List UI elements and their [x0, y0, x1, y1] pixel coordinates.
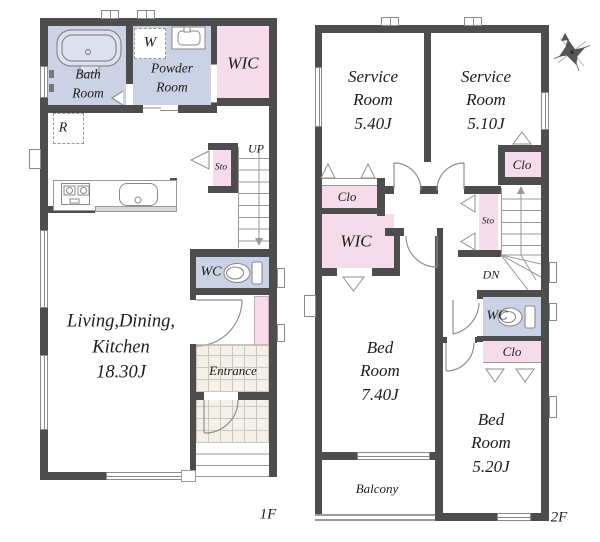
- floorplan: Bath Room Powder Room WIC W R Sto UP WC …: [0, 0, 600, 542]
- shower-panel: [49, 70, 54, 78]
- room-label-service-a: Service Room 5.40J: [348, 65, 398, 135]
- stove-burners: [64, 186, 89, 203]
- room-label-wc-1f: WC: [201, 262, 222, 281]
- door-arc: [437, 163, 464, 190]
- storage-door-icon: [461, 233, 475, 250]
- compass-icon: [554, 33, 590, 71]
- label-washer: W: [144, 33, 157, 54]
- closet-door-icon: [343, 277, 364, 291]
- label-storage-1f: Sto: [215, 161, 227, 174]
- floor-label-2f: 2F: [551, 508, 568, 529]
- arrow-down-icon: [255, 238, 263, 246]
- door-arc: [446, 343, 474, 371]
- room-label-wc-2f: WC: [487, 306, 508, 325]
- storage-door-icon: [191, 151, 209, 169]
- toilet-icon: [224, 262, 262, 284]
- door-arc: [394, 163, 421, 190]
- label-stairs-up: UP: [248, 141, 264, 158]
- stairs-winders: [501, 255, 541, 290]
- closet-door-icon: [516, 369, 534, 382]
- closet-door-icon: [361, 164, 375, 178]
- sink-icon: [172, 27, 205, 49]
- room-label-ldk: Living,Dining, Kitchen 18.30J: [67, 310, 175, 387]
- label-stairs-dn: DN: [483, 267, 500, 284]
- room-label-bath: Bath Room: [72, 65, 104, 102]
- label-storage-2f: Sto: [482, 215, 494, 228]
- door-arc: [453, 300, 479, 334]
- room-label-wic-1f: WIC: [227, 51, 258, 74]
- room-label-closet-hall: Clo: [338, 188, 357, 206]
- room-label-wic-2f: WIC: [340, 229, 371, 252]
- room-label-entrance: Entrance: [209, 362, 257, 380]
- room-label-closet-service: Clo: [513, 156, 532, 174]
- label-refrigerator: R: [59, 118, 68, 137]
- room-label-service-b: Service Room 5.10J: [461, 65, 511, 135]
- storage-door-icon: [461, 195, 475, 212]
- room-label-bed-b: Bed Room 5.20J: [471, 408, 511, 478]
- room-label-balcony: Balcony: [356, 480, 399, 498]
- arrow-up-icon: [517, 186, 525, 194]
- room-label-closet-bed: Clo: [503, 343, 522, 361]
- faucet-icon: [135, 197, 141, 203]
- closet-door-icon: [513, 132, 531, 144]
- room-label-bed-a: Bed Room 7.40J: [360, 336, 400, 406]
- door-arc: [406, 236, 437, 267]
- room-label-powder: Powder Room: [151, 59, 193, 96]
- closet-door-icon: [321, 164, 335, 178]
- door-arc: [196, 300, 242, 346]
- shower-panel: [49, 84, 54, 92]
- door-arc: [204, 400, 238, 433]
- closet-door-icon: [486, 369, 504, 382]
- folding-door-icon: [112, 91, 123, 105]
- floor-label-1f: 1F: [260, 505, 277, 526]
